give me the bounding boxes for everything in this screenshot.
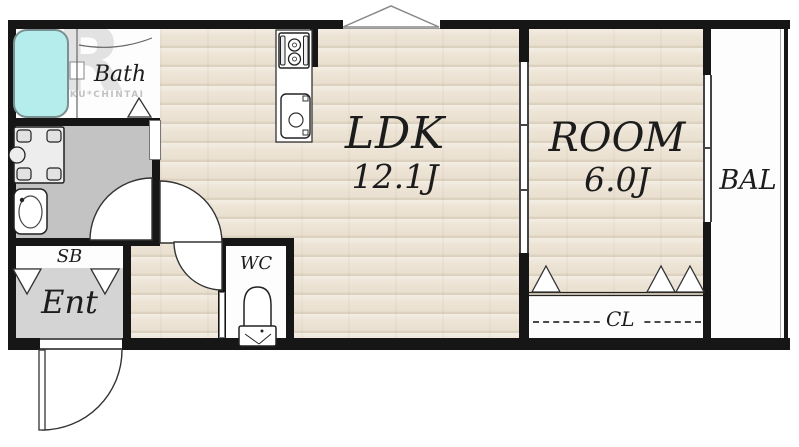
sliding-door-tick [521,189,527,191]
ldk-label: LDK [315,112,475,156]
wall-washroom-stub [152,158,160,240]
entrance-door [39,350,122,430]
closet-label: CL [600,309,641,329]
wc-label: WC [228,255,284,273]
ldk-size-label: 12.1J [315,160,475,193]
wall-room-balcony-bottom [703,222,711,350]
washroom-floor [8,118,160,246]
sliding-door-tick [521,124,527,126]
watermark-text: RAKURAKU*CHINTAI [19,90,159,100]
wall-wc-top [218,238,294,246]
wc-door-panel [219,292,225,338]
vent-wall-gap [343,20,440,29]
wall-washroom-hall [8,238,160,246]
wall-ldk-room-bottom [519,253,529,350]
wall-kitchen-stub [310,20,318,67]
wall-bath-washroom [8,118,160,126]
washroom-door-panel [149,120,161,160]
room-size-label: 6.0J [528,163,706,196]
entrance-opening [40,338,122,350]
wall-wc-right [286,238,294,350]
room-label: ROOM [528,118,706,158]
floorplan: R RAKURAKU*CHINTAI [0,0,799,447]
wall-room-balcony-top [703,20,711,75]
entrance-label: Ent [18,286,121,318]
shoebox-label: SB [18,248,121,266]
bath-label: Bath [80,64,160,86]
wall-ldk-room-top [519,20,529,62]
wall-entrance-hall [123,238,131,350]
balcony-label: BAL [710,167,786,194]
wall-left [8,20,16,350]
